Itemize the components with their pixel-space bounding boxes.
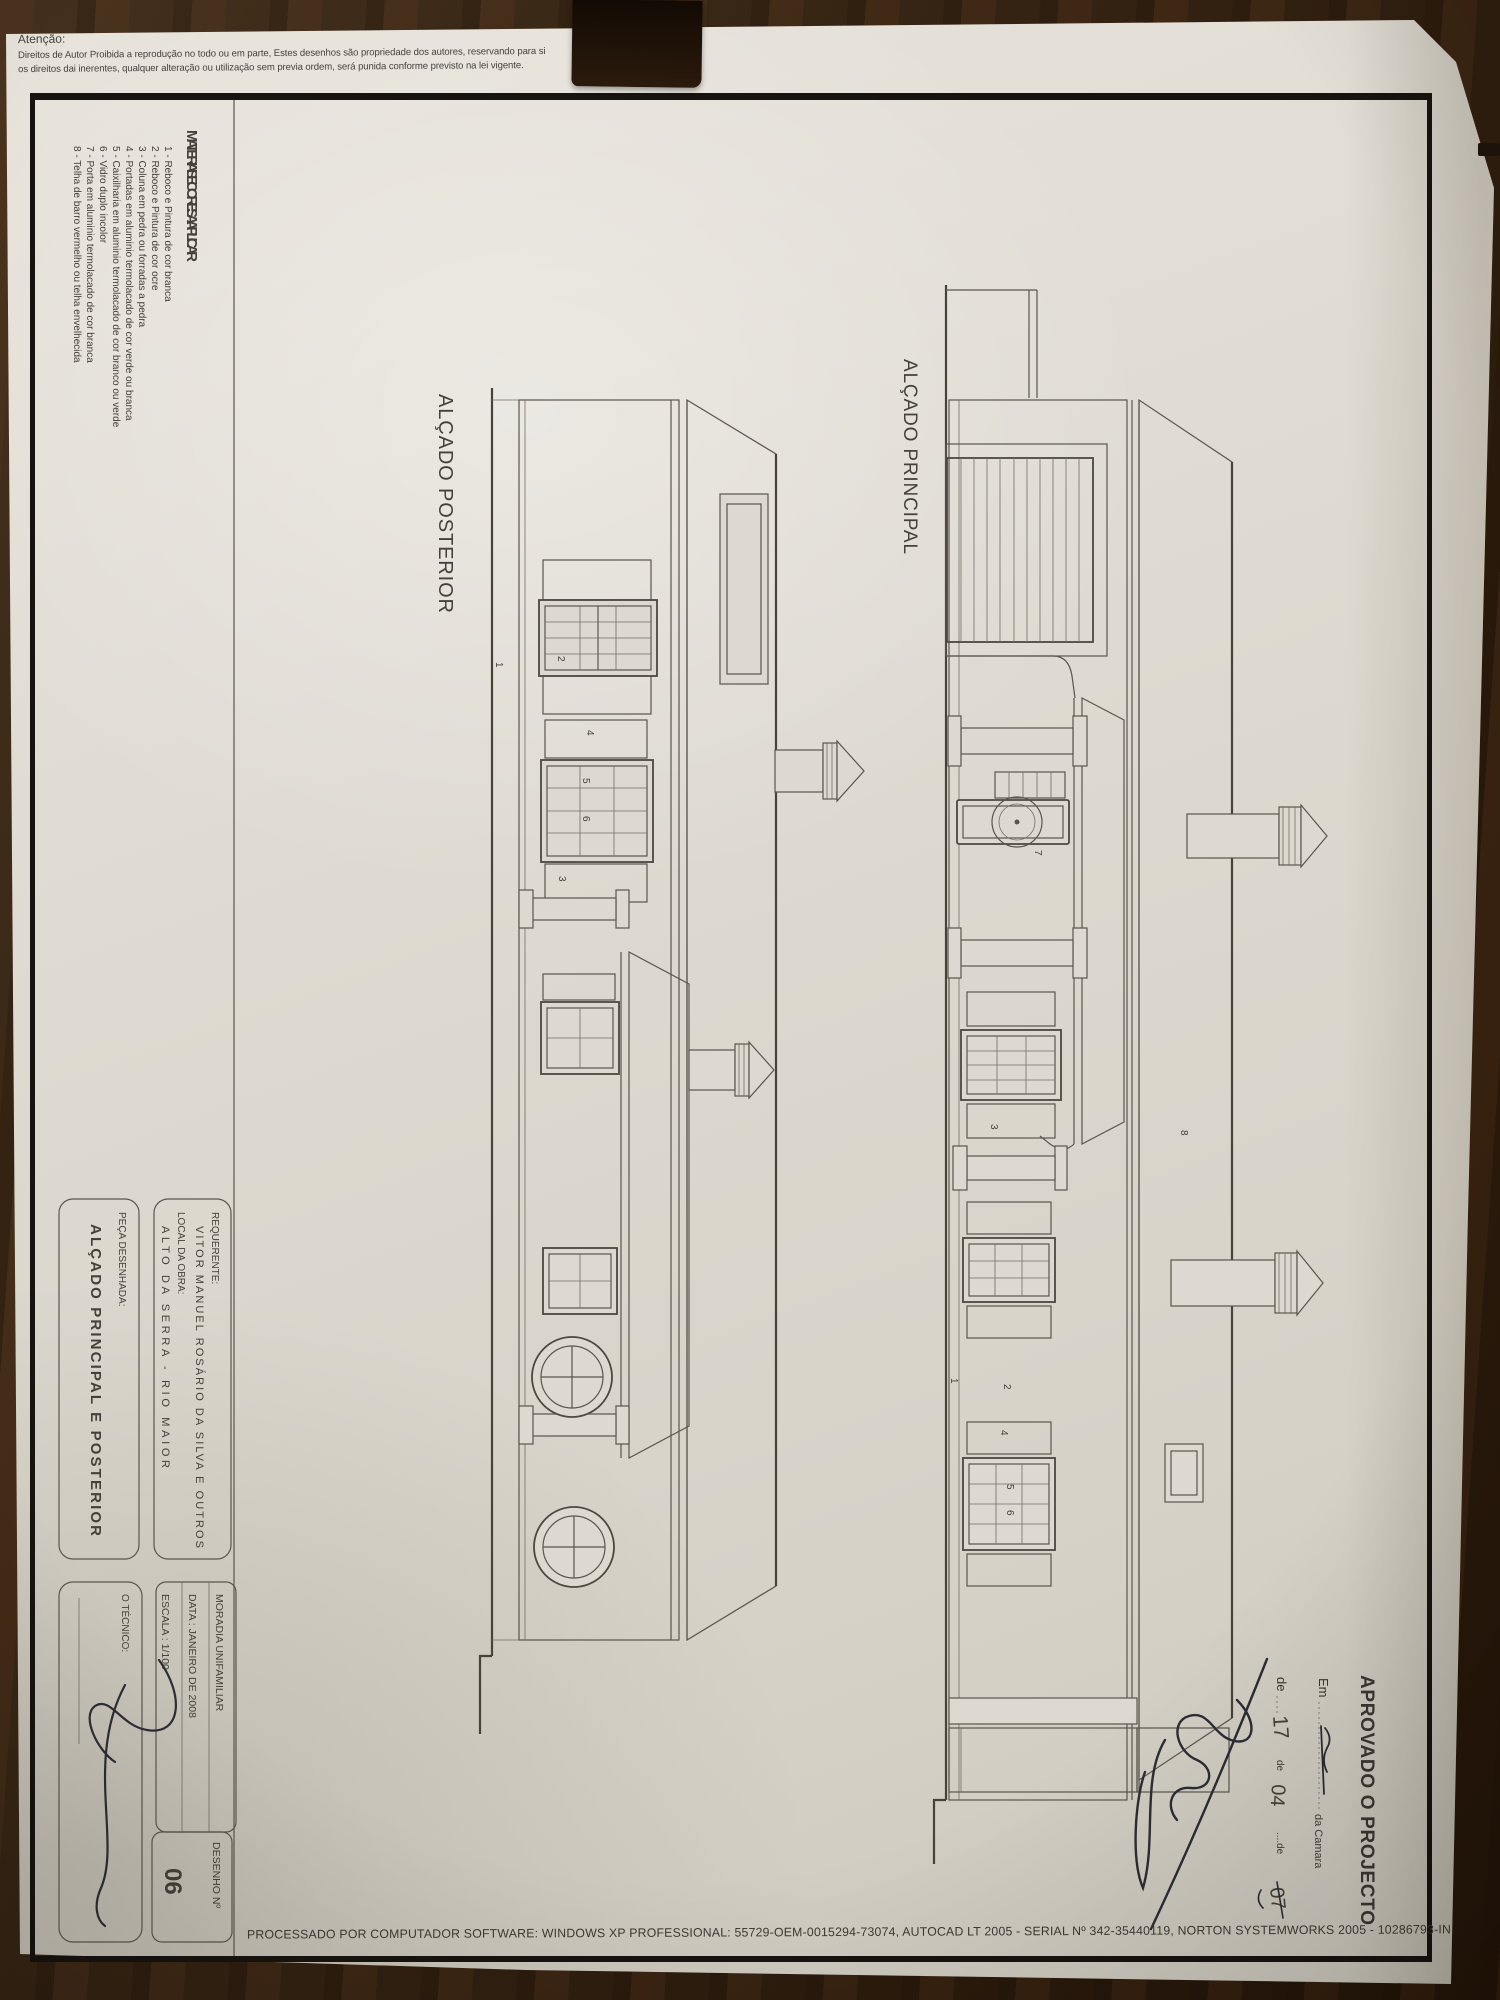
stamp-de3: ....de bbox=[1274, 1832, 1285, 1855]
material-item-5: 5 - Caixilharia em aluminio termolacado … bbox=[110, 146, 121, 428]
stone-column-b bbox=[948, 928, 1087, 978]
principal-window-bay-b bbox=[963, 1202, 1055, 1338]
local-value: ALTO DA SERRA - RIO MAIOR bbox=[159, 1226, 171, 1468]
callout-2b: 2 bbox=[1001, 1384, 1012, 1390]
principal-roof-skylight bbox=[1165, 1444, 1203, 1502]
local-label: LOCAL DA OBRA: bbox=[175, 1212, 186, 1294]
material-item-7: 7 - Porta em aluminio termolacado de cor… bbox=[84, 146, 95, 363]
principal-ground-line bbox=[934, 285, 946, 1864]
tecnico-label: O TÉCNICO: bbox=[119, 1594, 132, 1652]
callout-6b: 6 bbox=[1004, 1510, 1015, 1516]
posterior-ground-line bbox=[480, 388, 492, 1734]
posterior-chimney bbox=[775, 741, 864, 801]
stamp-camara: da Camara bbox=[1312, 1814, 1324, 1869]
principal-elevation: 7 3 bbox=[899, 285, 1327, 1864]
callout-5: 5 bbox=[580, 778, 591, 784]
entrance-door bbox=[957, 772, 1069, 847]
material-item-3: 3 - Coluna em pedra ou forradas a pedra bbox=[136, 146, 147, 328]
peca-label: PEÇA DESENHADA: bbox=[116, 1212, 127, 1306]
callout-3: 3 bbox=[556, 876, 567, 882]
posterior-roof-skylight bbox=[720, 494, 768, 684]
peca-box: PEÇA DESENHADA: ALÇADO PRINCIPAL E POSTE… bbox=[59, 1199, 139, 1559]
principal-chimney-1 bbox=[1187, 805, 1327, 867]
material-item-6: 6 - Vidro duplo incolor bbox=[97, 146, 108, 244]
principal-end-pier bbox=[949, 1698, 1229, 1792]
stone-column-a bbox=[948, 716, 1087, 766]
principal-elevation-title: ALÇADO PRINCIPAL bbox=[899, 359, 920, 555]
garage-molding bbox=[949, 656, 1075, 698]
stamp-de2: de bbox=[1274, 1760, 1285, 1772]
principal-window-bay-a bbox=[961, 992, 1061, 1138]
callout-3b: 3 bbox=[988, 1124, 999, 1130]
callout-7: 7 bbox=[1032, 850, 1043, 856]
material-item-8: 8 - Telha de barro vermelho ou telha env… bbox=[71, 146, 82, 363]
posterior-wing-chimney bbox=[689, 1042, 774, 1098]
callout-2: 2 bbox=[555, 656, 566, 662]
stamp-title: APROVADO O PROJECTO bbox=[1356, 1675, 1377, 1925]
materials-title: MATERIAIS E CORES A APLICAR bbox=[183, 130, 200, 262]
garage bbox=[946, 444, 1107, 656]
posterior-porch-column-1 bbox=[519, 890, 629, 928]
dark-object-top-edge bbox=[571, 0, 702, 88]
posterior-round-window-1 bbox=[532, 1337, 612, 1417]
stamp-ano-handwritten: 07 bbox=[1265, 1886, 1289, 1910]
warning-title: Atenção: bbox=[18, 28, 546, 46]
posterior-elevation: 4 5 6 bbox=[434, 388, 864, 1734]
requerente-value: VITOR MANUEL ROSÁRIO DA SILVA E OUTROS bbox=[193, 1226, 206, 1548]
requerente-label: REQUERENTE: bbox=[209, 1212, 220, 1284]
principal-window-bay-c bbox=[963, 1422, 1055, 1586]
peca-value: ALÇADO PRINCIPAL E POSTERIOR bbox=[87, 1224, 104, 1536]
materials-list: 1 - Reboco e Pintura de cor branca 2 - R… bbox=[71, 146, 173, 428]
photo-of-architectural-drawing: { "warning": { "title": "Atenção:", "lin… bbox=[0, 0, 1500, 2000]
posterior-window-bay-2 bbox=[541, 720, 653, 902]
table-edge-mark bbox=[1478, 143, 1500, 156]
stamp-scribble bbox=[1321, 1726, 1330, 1794]
stone-column-c bbox=[953, 1146, 1067, 1190]
callout-8: 8 bbox=[1178, 1130, 1189, 1136]
title-block: MATERIAIS E CORES A APLICAR 1 - Reboco e… bbox=[59, 100, 236, 1956]
stamp-dia-handwritten: 17 bbox=[1268, 1715, 1293, 1740]
stamp-de1: de bbox=[1274, 1677, 1289, 1691]
drawing-border-frame: 4 5 6 bbox=[30, 93, 1432, 1962]
stamp-em: Em bbox=[1316, 1678, 1331, 1698]
desenho-numero: 06 bbox=[159, 1868, 186, 1895]
callout-5b: 5 bbox=[1004, 1484, 1015, 1490]
posterior-elevation-title: ALÇADO POSTERIOR bbox=[434, 394, 456, 614]
approval-stamp: APROVADO O PROJECTO Em da Camara de 17 d… bbox=[1136, 1659, 1377, 1929]
desenho-label: DESENHO Nº bbox=[210, 1842, 222, 1908]
copyright-warning: Atenção: Direitos de Autor Proibida a re… bbox=[18, 28, 546, 77]
callout-1b: 1 bbox=[948, 1378, 959, 1384]
stamp-mes-handwritten: 04 bbox=[1266, 1784, 1289, 1807]
callout-6: 6 bbox=[580, 816, 591, 822]
desenho-box: DESENHO Nº 06 bbox=[152, 1832, 232, 1942]
material-item-1: 1 - Reboco e Pintura de cor branca bbox=[162, 146, 173, 302]
material-item-4: 4 - Portadas em aluminio termolacado de … bbox=[123, 146, 134, 421]
data-value: DATA : JANEIRO DE 2008 bbox=[186, 1594, 198, 1718]
callout-1: 1 bbox=[493, 662, 504, 668]
rotated-landscape-sheet: 4 5 6 bbox=[35, 100, 1427, 1956]
requerente-box: REQUERENTE: VITOR MANUEL ROSÁRIO DA SILV… bbox=[154, 1199, 231, 1559]
approval-signature bbox=[1136, 1659, 1267, 1929]
moradia-value: MORADIA UNIFAMILIAR bbox=[213, 1594, 225, 1712]
project-info-box: MORADIA UNIFAMILIAR DATA : JANEIRO DE 20… bbox=[156, 1582, 236, 1832]
callout-4b: 4 bbox=[998, 1430, 1009, 1436]
material-item-2: 2 - Reboco e Pintura de cor ocre bbox=[149, 146, 160, 291]
principal-roof-tiles bbox=[1139, 400, 1232, 1780]
elevations-drawing-svg: 4 5 6 bbox=[35, 100, 1427, 1956]
escala-value: ESCALA : 1/100 bbox=[159, 1594, 171, 1670]
posterior-window-bay-1 bbox=[539, 560, 657, 714]
garden-wall bbox=[946, 290, 1037, 398]
callout-4: 4 bbox=[584, 730, 595, 736]
posterior-round-window-2 bbox=[534, 1507, 614, 1587]
principal-chimney-2 bbox=[1171, 1251, 1323, 1315]
